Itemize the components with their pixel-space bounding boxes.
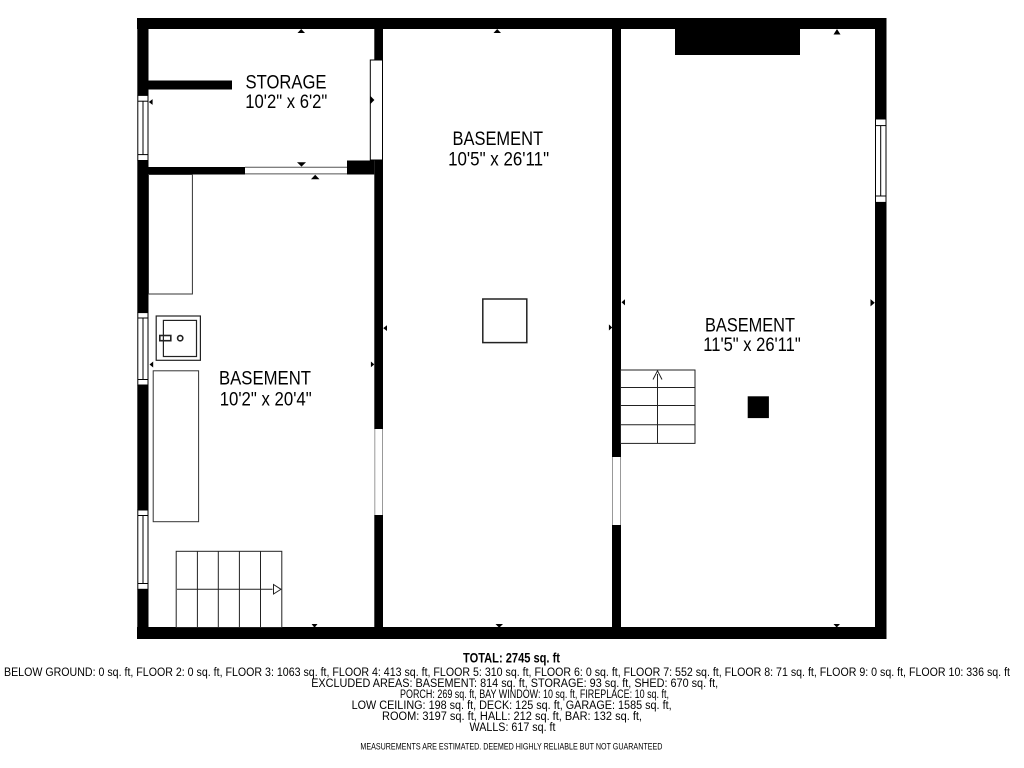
svg-text:WALLS: 617 sq. ft: WALLS: 617 sq. ft <box>470 720 557 734</box>
svg-text:TOTAL: 2745 sq. ft: TOTAL: 2745 sq. ft <box>463 650 560 665</box>
svg-text:BASEMENT: BASEMENT <box>705 316 795 337</box>
svg-text:11'5" x 26'11": 11'5" x 26'11" <box>703 335 800 356</box>
svg-text:10'2" x 20'4": 10'2" x 20'4" <box>220 390 312 411</box>
svg-text:10'2" x 6'2": 10'2" x 6'2" <box>245 92 327 113</box>
svg-text:MEASUREMENTS ARE ESTIMATED. DE: MEASUREMENTS ARE ESTIMATED. DEEMED HIGHL… <box>360 742 662 752</box>
svg-text:STORAGE: STORAGE <box>246 73 327 94</box>
svg-text:BASEMENT: BASEMENT <box>219 369 311 390</box>
svg-text:BASEMENT: BASEMENT <box>453 129 544 150</box>
svg-text:10'5" x 26'11": 10'5" x 26'11" <box>448 150 549 171</box>
